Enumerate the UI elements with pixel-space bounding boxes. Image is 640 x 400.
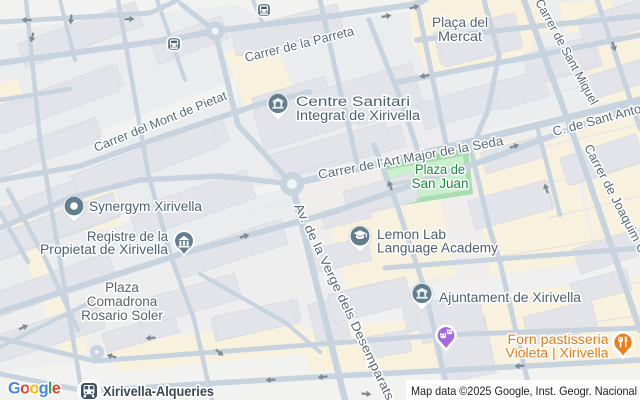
svg-text:Synergym Xirivella: Synergym Xirivella — [89, 199, 202, 214]
svg-text:Plaza: Plaza — [105, 280, 139, 295]
svg-text:Mercat: Mercat — [438, 28, 482, 44]
svg-text:Integrat de Xirivella: Integrat de Xirivella — [296, 108, 421, 123]
svg-text:Ajuntament de Xirivella: Ajuntament de Xirivella — [439, 290, 581, 305]
svg-text:San Juan: San Juan — [412, 176, 469, 191]
svg-text:Centre Sanitari: Centre Sanitari — [296, 94, 410, 109]
svg-text:Map data ©2025 Google, Inst. G: Map data ©2025 Google, Inst. Geogr. Naci… — [411, 384, 637, 398]
svg-text:Violeta | Xirivella: Violeta | Xirivella — [506, 346, 610, 361]
svg-text:Comadrona: Comadrona — [87, 294, 158, 309]
svg-text:Propietat de Xirivella: Propietat de Xirivella — [40, 242, 168, 257]
svg-text:Google: Google — [8, 380, 61, 398]
svg-text:Language Academy: Language Academy — [377, 241, 498, 256]
svg-text:Xirivella-Alqueries: Xirivella-Alqueries — [103, 384, 214, 399]
svg-text:Plaza de: Plaza de — [415, 162, 465, 177]
svg-text:Rosario Soler: Rosario Soler — [81, 308, 163, 323]
